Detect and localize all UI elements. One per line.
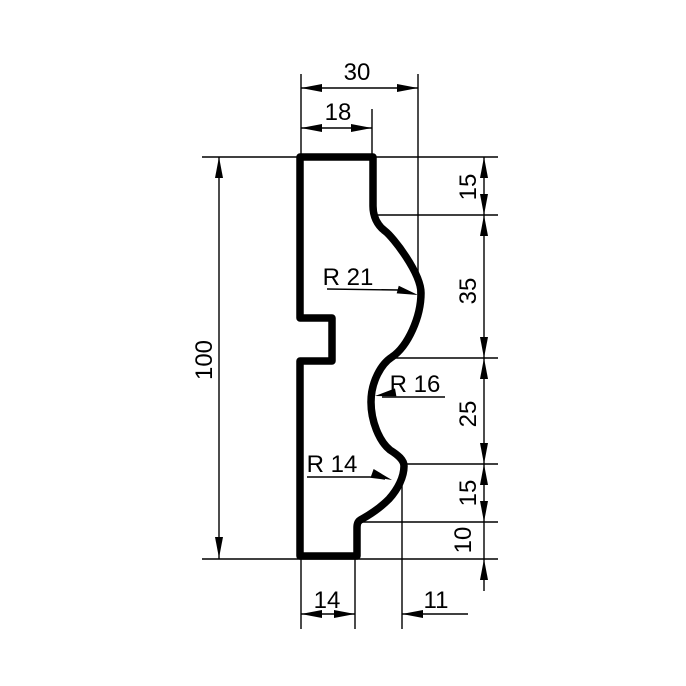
dim-label-bottom-flat: 14 [314,587,341,614]
dim-label-seg-10: 10 [450,527,477,554]
dim-label-bottom-offset: 11 [424,587,449,614]
radius-label-r14: R 14 [307,451,358,478]
dim-label-seg-lower-15: 15 [455,480,482,507]
dim-label-top-flat: 18 [325,99,352,126]
technical-drawing-canvas: 30 18 100 15 35 25 15 10 14 11 R 21 R 16… [0,0,686,686]
dim-label-seg-top-15: 15 [455,174,482,201]
dim-label-top-width: 30 [344,59,371,86]
radius-label-r21: R 21 [323,264,374,291]
radius-label-r16: R 16 [390,371,441,398]
drawing-page: 30 18 100 15 35 25 15 10 14 11 R 21 R 16… [0,0,686,686]
dim-label-seg-25: 25 [455,401,482,428]
dim-label-seg-35: 35 [455,278,482,305]
dim-label-total-height: 100 [191,340,218,380]
